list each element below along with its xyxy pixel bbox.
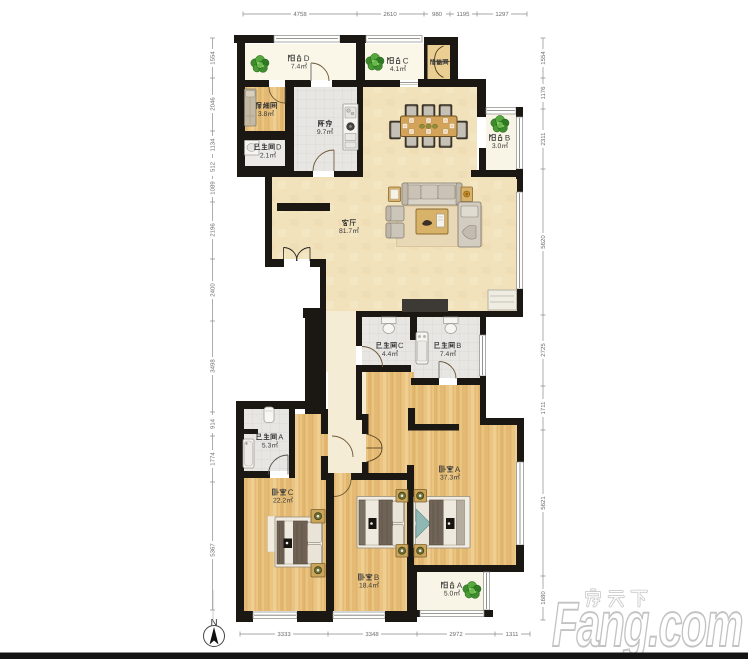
- svg-text:7.4㎡: 7.4㎡: [291, 63, 307, 71]
- svg-text:2311: 2311: [540, 132, 547, 146]
- svg-text:2725: 2725: [540, 343, 547, 357]
- svg-text:1297: 1297: [495, 11, 509, 18]
- svg-text:2972: 2972: [449, 631, 463, 638]
- svg-text:2400: 2400: [210, 283, 217, 297]
- svg-text:C: C: [288, 488, 294, 497]
- svg-text:2196: 2196: [210, 223, 217, 237]
- svg-text:5620: 5620: [540, 235, 547, 249]
- svg-text:3333: 3333: [277, 631, 291, 638]
- svg-text:C: C: [403, 56, 409, 65]
- svg-text:4.4㎡: 4.4㎡: [382, 350, 398, 358]
- svg-text:4758: 4758: [293, 11, 307, 18]
- svg-text:1554: 1554: [210, 51, 217, 65]
- svg-text:N: N: [211, 618, 218, 629]
- svg-text:D: D: [304, 54, 310, 63]
- svg-text:2610: 2610: [383, 11, 397, 18]
- svg-text:1134: 1134: [210, 138, 217, 152]
- svg-text:5621: 5621: [540, 496, 547, 510]
- svg-text:1680: 1680: [540, 591, 547, 605]
- svg-text:22.2㎡: 22.2㎡: [273, 497, 293, 505]
- svg-text:B: B: [456, 341, 461, 350]
- svg-text:B: B: [374, 573, 379, 582]
- svg-text:5.0㎡: 5.0㎡: [444, 590, 460, 598]
- svg-text:5.3㎡: 5.3㎡: [262, 441, 278, 449]
- svg-text:3.8㎡: 3.8㎡: [258, 110, 274, 118]
- svg-text:2046: 2046: [210, 97, 217, 111]
- svg-text:B: B: [505, 133, 510, 142]
- svg-text:A: A: [455, 465, 461, 474]
- svg-text:D: D: [276, 143, 282, 152]
- svg-text:37.3㎡: 37.3㎡: [440, 474, 460, 482]
- svg-text:3.0㎡: 3.0㎡: [492, 142, 508, 150]
- svg-text:Fang.com: Fang.com: [552, 590, 742, 659]
- svg-text:1089: 1089: [210, 181, 217, 195]
- svg-text:81.7㎡: 81.7㎡: [339, 227, 359, 235]
- svg-text:18.4㎡: 18.4㎡: [359, 582, 379, 590]
- svg-text:1195: 1195: [457, 11, 471, 18]
- svg-text:3498: 3498: [210, 359, 217, 373]
- svg-text:1774: 1774: [210, 452, 217, 466]
- svg-text:7.4㎡: 7.4㎡: [440, 350, 456, 358]
- svg-text:2.1㎡: 2.1㎡: [260, 151, 276, 159]
- svg-text:A: A: [457, 581, 463, 590]
- svg-text:512: 512: [210, 161, 217, 172]
- svg-text:4.1㎡: 4.1㎡: [390, 65, 406, 73]
- svg-text:1711: 1711: [540, 401, 547, 415]
- svg-text:980: 980: [432, 11, 443, 18]
- svg-text:5367: 5367: [210, 543, 217, 557]
- svg-text:1311: 1311: [506, 631, 520, 638]
- svg-text:1554: 1554: [540, 51, 547, 65]
- svg-text:914: 914: [210, 418, 217, 429]
- svg-text:9.7㎡: 9.7㎡: [317, 128, 333, 136]
- svg-text:3348: 3348: [365, 631, 379, 638]
- svg-text:1176: 1176: [540, 86, 547, 100]
- svg-text:C: C: [398, 341, 404, 350]
